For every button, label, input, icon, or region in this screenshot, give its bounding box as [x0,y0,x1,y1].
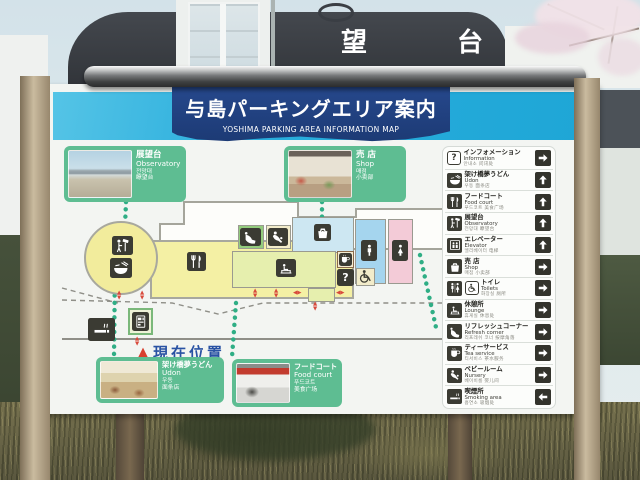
lounge-bench-icon [276,259,296,277]
sign-post-rear-left [116,405,144,480]
entrance-arrow: ▲▼ [253,289,257,298]
entrance-arrow: ▲▼ [140,291,144,300]
rooftop-ring [318,3,354,22]
photo-card-udon: 架け橋夢うどん Udon 우동 面条店 [96,357,224,403]
sign-subtitle: YOSHIMA PARKING AREA INFORMATION MAP [223,125,399,134]
card-label-cn: 面条店 [162,385,212,392]
tea-cup-icon [339,253,352,266]
title-banner: 与島パーキングエリア案内 YOSHIMA PARKING AREA INFORM… [172,86,450,144]
sign-post-right [574,78,600,480]
photo-card-food-court: フードコート Food court 푸드코트 美食广场 [232,359,342,407]
lounge-bench-icon [447,303,462,318]
question-icon: ? [447,151,461,165]
nursery-baby-icon [268,228,288,246]
card-label-en: Food court [294,371,337,379]
sign-top-bar [84,66,586,87]
arrow-up-icon [535,237,551,253]
legend-row-observatory: 展望台Observatory전망대 瞭望台 [445,212,553,234]
card-label-cn: 美食广场 [294,387,337,394]
observatory-photo [68,150,132,198]
udon-photo [100,361,158,399]
smoking-icon [447,389,462,404]
smoking-icon [88,318,115,341]
massage-chair-icon [240,228,261,246]
entrance-arrow: ▲▼ [313,302,317,311]
nursery-baby-icon [447,368,462,383]
legend-panel: ? インフォメーションInformation안내소 问讯处 架け橋夢うどんUdo… [442,146,556,409]
arrow-up-icon [535,194,551,210]
observatory-icon [447,216,462,231]
arrow-left-icon [535,389,551,405]
arrow-right-icon [535,280,551,296]
cherry-blossoms [515,22,590,54]
question-icon: ? [337,269,354,286]
fork-knife-icon [187,252,206,271]
legend-row-food-court: フードコートFood court푸드코트 美食广场 [445,190,553,212]
arrow-right-icon [535,259,551,275]
food-court-photo [236,363,290,403]
elevator-icon [447,238,462,253]
arrow-right-icon [535,367,551,383]
wheelchair-icon [465,281,479,295]
arrow-right-icon [535,302,551,318]
sign-post-left [20,76,50,480]
legend-row-udon: 架け橋夢うどんUdon우동 面条店 [445,169,553,191]
bush-right [598,255,640,365]
arrow-up-icon [535,215,551,231]
arrow-right-icon [535,150,551,166]
card-label-kr: 우동 [162,378,212,385]
udon-bowl-icon [447,173,462,188]
card-label-kr: 푸드코트 [294,380,337,387]
wall-right [600,148,640,260]
card-label-en: Observatory [136,160,180,168]
legend-row-tea-service: ティーサービスTea service티서비스 茶水服务 [445,342,553,364]
arrow-right-icon [535,324,551,340]
legend-row-smoking-area: 喫煙所Smoking area흡연소 吸烟处 [445,385,553,407]
entrance-arrow: ▲▼ [117,291,121,300]
arrow-up-icon [535,172,551,188]
shopping-bag-icon [447,259,462,274]
woman-icon [392,240,408,261]
man-icon [361,240,377,261]
card-label-cn: 瞭望台 [136,175,180,182]
legend-row-refresh-corner: リフレッシュコーナーRefresh corner리프레쉬 코너 按摩角落 [445,320,553,342]
card-label-en: Udon [162,369,212,377]
entrance-arrow: ◀▶ [293,291,301,296]
arrow-right-icon [535,345,551,361]
udon-bowl-icon [110,258,132,278]
fork-knife-icon [447,194,462,209]
legend-row-information: ? インフォメーションInformation안내소 问讯处 [445,148,553,169]
sign-post-rear-right [448,405,472,480]
card-label-cn: 小卖部 [356,175,376,182]
cherry-blossoms [598,38,640,76]
tea-cup-icon [447,346,462,361]
photo-of-information-sign: 展望台 ? [0,0,640,480]
legend-row-elevator: エレベーターElevator엘리베이터 电梯 [445,234,553,256]
wheelchair-icon [358,269,373,284]
shopping-bag-icon [314,224,331,241]
observatory-icon [112,236,133,255]
vending-machine-icon [132,312,149,331]
legend-row-toilets: トイレToilets화장실 厕所 [445,277,553,299]
man-woman-icon [447,281,462,296]
route-dots-right [420,255,437,332]
map-room-entrance [308,288,335,302]
photo-card-shop: 売 店 Shop 매점 小卖部 [284,146,406,202]
photo-card-observatory: 展望台 Observatory 전망대 瞭望台 [64,146,186,202]
entrance-arrow: ▲▼ [274,289,278,298]
legend-row-nursery: ベビールームNursery베이비룸 婴儿间 [445,364,553,386]
entrance-arrow: ◀▶ [336,291,344,296]
card-label-en: Shop [356,160,376,168]
legend-row-shop: 売 店Shop매점 小卖部 [445,255,553,277]
massage-chair-icon [447,324,462,339]
shop-photo [288,150,352,198]
legend-row-lounge: 休憩所Lounge휴게실 休息处 [445,299,553,321]
sign-title: 与島パーキングエリア案内 [185,93,436,122]
